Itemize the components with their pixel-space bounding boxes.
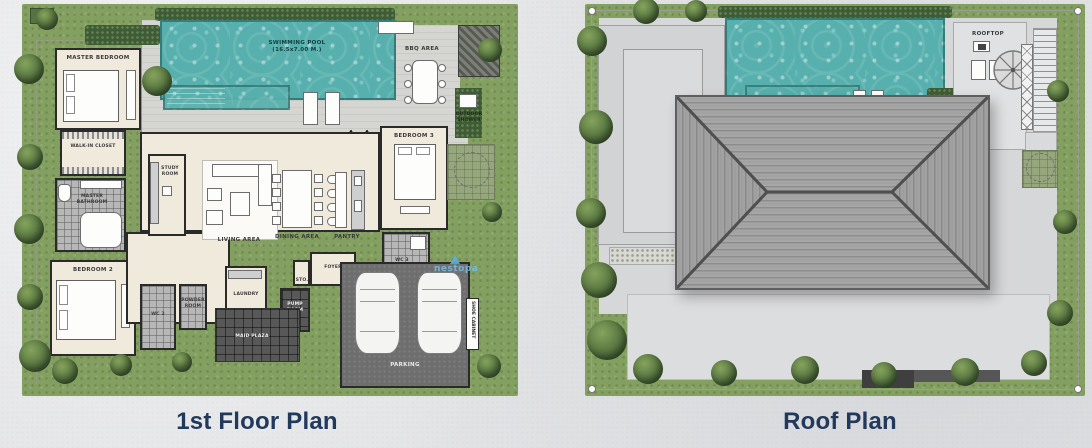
main-roof — [675, 95, 990, 290]
tree-icon — [1021, 350, 1047, 376]
bbq-counter — [378, 21, 414, 34]
parking-label: PARKING — [374, 362, 436, 369]
grill-icon — [978, 44, 986, 50]
tree-icon — [36, 8, 58, 30]
tree-icon — [17, 144, 43, 170]
tree-icon — [633, 354, 663, 384]
stool — [327, 189, 336, 198]
stool — [327, 203, 336, 212]
tree-canopy-outline — [454, 152, 490, 188]
pillow — [66, 74, 75, 92]
pillow — [66, 96, 75, 114]
boundary-marker — [1074, 7, 1082, 15]
hedge-strip — [85, 25, 160, 45]
wardrobe — [62, 132, 124, 139]
shoe-cabinet-label: SHOE CABINET — [470, 301, 475, 338]
first-floor-plan-title: 1st Floor Plan — [147, 408, 367, 436]
wardrobe — [62, 167, 124, 174]
driveway — [627, 294, 1050, 380]
chair — [314, 202, 323, 211]
tree-icon — [478, 38, 502, 62]
bathtub — [80, 212, 122, 248]
chaise — [258, 164, 272, 206]
tree-icon — [581, 262, 617, 298]
vanity-sinks — [80, 180, 122, 189]
bbq-table — [412, 60, 438, 104]
pillow — [59, 285, 68, 305]
setback-line-vertical — [36, 40, 37, 384]
rooftop-lounger — [971, 60, 986, 80]
chair — [404, 80, 412, 88]
pantry-island — [335, 172, 347, 228]
chair — [272, 216, 281, 225]
car — [417, 272, 462, 354]
chair — [272, 202, 281, 211]
walk-in-closet-label: WALK-IN CLOSET — [70, 144, 116, 150]
tree-icon — [579, 110, 613, 144]
tree-icon — [587, 320, 627, 360]
sofa — [212, 164, 264, 177]
bedroom-3-label: BEDROOM 3 — [386, 133, 442, 140]
master-bathroom-label: MASTER BATHROOM — [70, 194, 114, 206]
car — [355, 272, 400, 354]
master-bedroom-label: MASTER BEDROOM — [60, 55, 136, 62]
pillow — [416, 147, 430, 155]
dining-area-label: DINING AREA — [266, 234, 328, 241]
tree-icon — [110, 354, 132, 376]
boundary-marker — [1074, 385, 1082, 393]
rooftop-label: ROOFTOP — [959, 31, 1017, 38]
armchair — [207, 188, 222, 201]
boundary-marker — [588, 7, 596, 15]
chair — [272, 188, 281, 197]
louver-screen — [1021, 44, 1033, 130]
watermark-sail-icon — [450, 255, 460, 264]
tree-icon — [791, 356, 819, 384]
roof-plan-title: Roof Plan — [735, 408, 945, 436]
tree-icon — [1047, 300, 1073, 326]
tree-icon — [685, 0, 707, 22]
hip-roof-drawing — [675, 95, 990, 290]
chair — [272, 174, 281, 183]
first-floor-plan: SWIMMING POOL (16.5x7.00 M.) POOL DECK M… — [22, 4, 518, 396]
tree-icon — [482, 202, 502, 222]
chair — [404, 64, 412, 72]
tree-icon — [14, 214, 44, 244]
coffee-table — [230, 192, 250, 216]
pillow — [398, 147, 412, 155]
swimming-pool-label: SWIMMING POOL (16.5x7.00 M.) — [232, 40, 362, 54]
dining-table — [282, 170, 312, 228]
chair — [438, 96, 446, 104]
tree-canopy-outline — [1026, 153, 1055, 182]
outdoor-shower-label: OUTDOOR SHOWER — [452, 112, 486, 124]
console-table — [126, 70, 136, 120]
wc-2-label: WC 2 — [142, 312, 174, 318]
pantry-label: PANTRY — [325, 234, 369, 241]
laundry-label: LAUNDRY — [227, 292, 265, 298]
shower — [410, 236, 426, 250]
chair — [438, 80, 446, 88]
chair — [314, 174, 323, 183]
stool — [327, 175, 336, 184]
tree-icon — [1047, 80, 1069, 102]
bedroom-2-label: BEDROOM 2 — [56, 267, 130, 274]
tree-icon — [576, 198, 606, 228]
floor-plans-page: SWIMMING POOL (16.5x7.00 M.) POOL DECK M… — [0, 0, 1092, 448]
living-area-label: LIVING AREA — [202, 237, 276, 244]
bbq-grill — [973, 41, 990, 52]
chair — [404, 96, 412, 104]
watermark: nestopa — [434, 264, 478, 274]
stool — [327, 217, 336, 226]
chair — [162, 186, 172, 196]
hob — [354, 200, 362, 212]
armchair — [206, 210, 223, 225]
tree-icon — [14, 54, 44, 84]
laundry-counter — [228, 270, 262, 279]
tree-icon — [19, 340, 51, 372]
tree-icon — [577, 26, 607, 56]
tree-icon — [1053, 210, 1077, 234]
sun-lounger — [303, 92, 318, 125]
powder-room-label: POWDER ROOM — [180, 298, 206, 310]
pillow — [59, 310, 68, 330]
swimming-pool-name: SWIMMING POOL — [269, 40, 326, 46]
study-room-label: STUDY ROOM — [156, 166, 184, 178]
tree-icon — [142, 66, 172, 96]
pebble-strip — [609, 247, 679, 265]
watermark-text: nestopa — [434, 264, 478, 274]
swimming-pool-dim: (16.5x7.00 M.) — [272, 47, 321, 53]
sink — [354, 176, 362, 186]
tree-icon — [52, 358, 78, 384]
boundary-marker — [588, 385, 596, 393]
chair — [314, 188, 323, 197]
tree-icon — [172, 352, 192, 372]
pool-steps — [167, 88, 225, 107]
tree-icon — [711, 360, 737, 386]
chair — [314, 216, 323, 225]
bbq-area-label: BBQ AREA — [390, 46, 454, 53]
tree-icon — [951, 358, 979, 386]
sun-lounger — [325, 92, 340, 125]
chair — [438, 64, 446, 72]
outdoor-shower-tray — [459, 94, 477, 108]
shoe-cabinet: SHOE CABINET — [466, 298, 479, 350]
roof-plan: ROOFTOP — [585, 4, 1085, 396]
maid-plaza-label: MAID PLAZA — [222, 334, 282, 340]
hedge-strip — [718, 6, 952, 18]
tree-icon — [871, 362, 897, 388]
tree-icon — [477, 354, 501, 378]
tree-icon — [17, 284, 43, 310]
bench — [400, 206, 430, 214]
